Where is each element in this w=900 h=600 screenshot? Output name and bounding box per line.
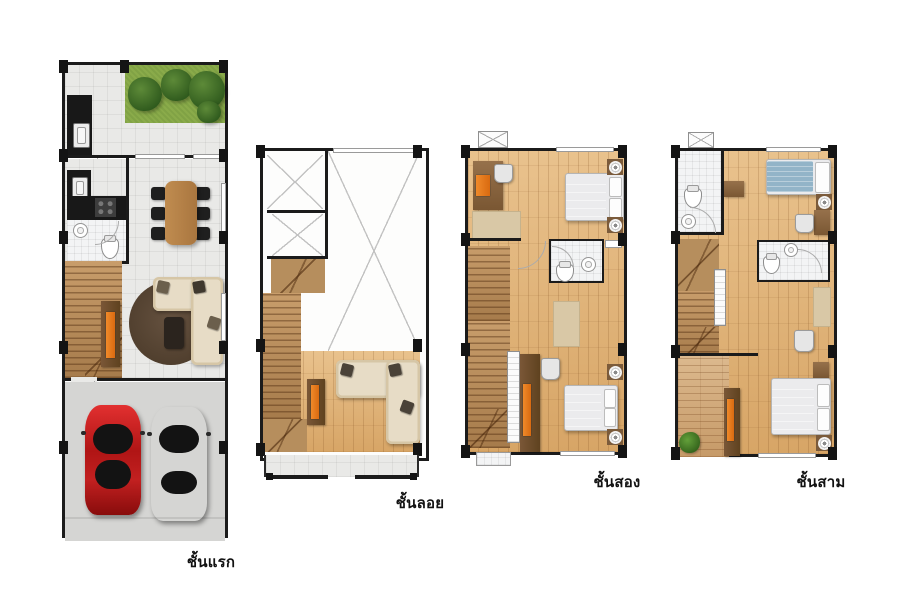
pillar [410,473,417,480]
pillar [219,149,228,162]
pillar [461,145,470,158]
rug [472,211,521,239]
blanket [767,161,813,192]
air-conditioner-icon [688,132,714,148]
window [758,453,816,458]
stair-railing [714,269,726,326]
pillar [618,233,627,246]
tv-icon [311,385,319,419]
pillar [266,473,273,480]
pillar [828,145,837,158]
window [560,451,615,456]
staircase [263,293,301,419]
window [766,147,821,152]
plan-mezzanine [260,148,423,482]
dining-chair [151,207,166,220]
stair-winder [263,419,307,452]
ac-ledge [476,452,511,466]
label-second-floor: ชั้นสอง [562,470,672,494]
mirror [147,432,152,436]
pillar [59,441,68,454]
pillow-icon [609,177,622,197]
plant-icon [679,432,700,453]
rear-window [161,471,197,494]
balcony-rail [268,475,328,479]
desk-chair [795,214,814,233]
pillar [59,341,68,354]
label-first-floor: ชั้นแรก [156,550,266,574]
pillar [59,60,68,73]
pillow-icon [156,280,170,294]
plan-third-floor [675,148,837,457]
pillar [256,339,265,352]
void-open-to-below [328,151,420,351]
pillar [120,60,129,73]
air-conditioner-icon [478,131,508,148]
coffee-table [164,317,184,349]
pillar [461,343,470,356]
pillar [618,445,627,458]
dining-chair [195,187,210,200]
windshield [93,424,133,455]
pillar [413,339,422,352]
pillar [671,345,680,358]
pillar [59,231,68,244]
tree-icon [128,77,162,111]
dining-table [165,181,197,245]
pillar [828,345,837,358]
pillar [828,447,837,460]
pillow-icon [388,363,402,377]
void-room-small-2 [272,214,323,256]
desk-chair [494,164,513,183]
tv-icon [523,384,531,436]
blanket [772,383,814,430]
window [556,147,614,152]
ceiling-speaker-icon [816,194,832,210]
pillar [671,145,680,158]
rug [553,301,580,347]
bed [771,378,831,435]
pillar [671,231,680,244]
pillow-icon [604,408,616,427]
desk-chair [541,358,560,380]
stair-winder [271,259,325,293]
laundry-sink [73,123,90,148]
closet [813,362,829,378]
wall [267,210,325,213]
pillow-icon [192,280,206,294]
pillar [413,145,422,158]
red-car-icon [85,405,141,515]
pillar [828,231,837,244]
void-room-small [267,155,323,209]
pillar [219,341,228,354]
dresser [724,181,744,197]
blanket [566,177,606,217]
label-mezzanine: ชั้นลอย [365,491,475,515]
wall [468,238,521,241]
bed [565,173,624,221]
floor-plan-sheet: ชั้นแรก ชั้นลอย ชั้นสอง ชั้นสาม [0,0,900,600]
window [221,293,226,341]
plan-first-floor [62,62,228,538]
garden [125,65,225,123]
label-third-floor: ชั้นสาม [766,470,876,494]
staircase [468,246,510,321]
plan-second-floor [465,148,627,455]
ceiling-speaker-icon [607,364,623,380]
window [333,148,417,153]
bathroom-sink [73,223,88,238]
balcony [264,455,419,477]
pillar [671,447,680,460]
bed-blue [766,159,831,195]
chair [794,330,814,352]
pillar [256,145,265,158]
wardrobe [507,351,520,443]
mezzanine-walls [260,148,429,461]
bathroom-sink [581,257,596,272]
tree-icon [197,101,221,123]
pillar [59,149,68,162]
ceiling-speaker-icon [607,159,623,175]
pillow-icon [604,389,616,408]
rug [813,287,831,327]
dining-chair [151,187,166,200]
bed [564,385,618,431]
pillar [618,145,627,158]
pillow-icon [609,198,622,218]
mirror [206,432,211,436]
laptop-icon [476,175,490,196]
stair-winder [678,239,719,291]
pillar [461,233,470,246]
pillow-icon [815,162,830,193]
door-swing [518,241,546,269]
pillar [618,343,627,356]
pillow-icon [817,408,830,431]
stove-icon [95,198,116,217]
dining-chair [151,227,166,240]
tv-icon [727,399,734,441]
wall [126,155,129,261]
rear-window [95,460,131,489]
tree-icon [161,69,193,101]
windshield [159,425,199,452]
pillar [219,231,228,244]
dining-chair [195,207,210,220]
pillar [219,60,228,73]
blanket [565,389,601,427]
pillow-icon [817,384,830,407]
silver-car-icon [151,407,207,521]
tv-icon [106,312,115,358]
ceiling-speaker-icon [607,429,623,445]
pillar [461,445,470,458]
balcony-rail [355,475,415,479]
bathroom-sink [784,243,798,257]
pillar [219,441,228,454]
mirror [81,431,86,435]
ceiling-speaker-icon [607,217,623,233]
dining-chair [195,227,210,240]
stair-winder [468,409,510,448]
